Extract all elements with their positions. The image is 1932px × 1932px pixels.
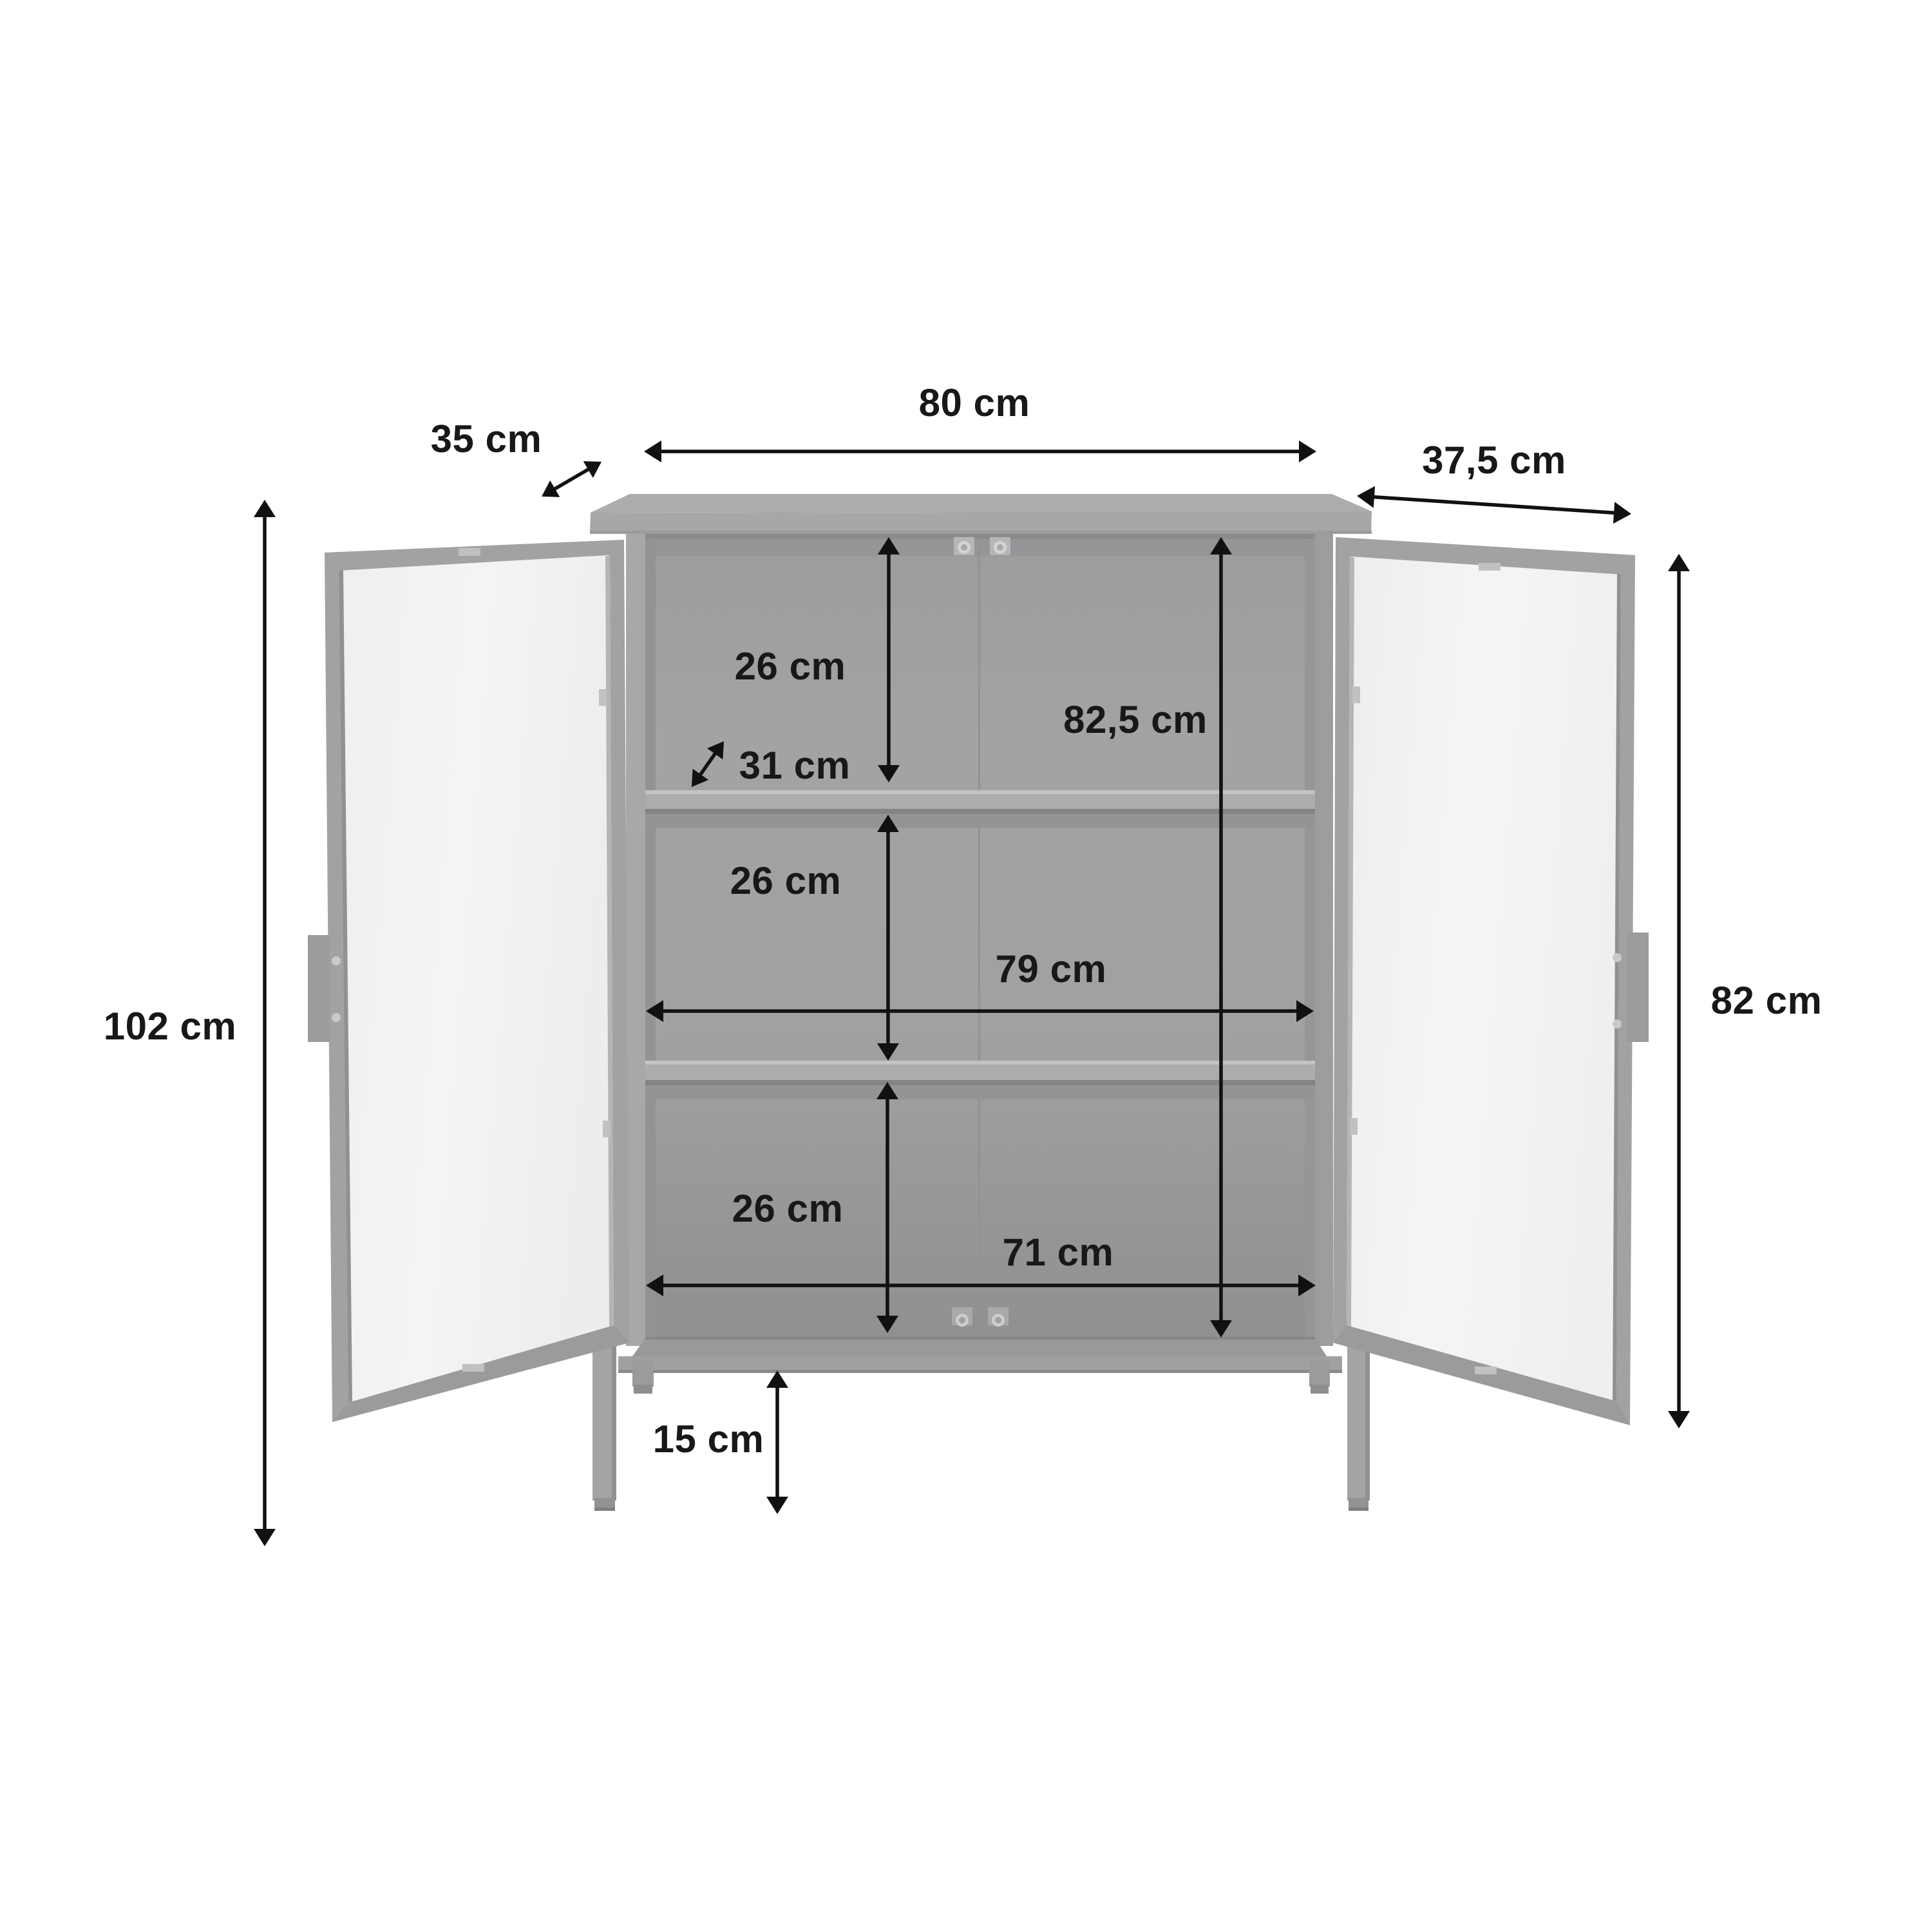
svg-text:37,5 cm: 37,5 cm: [1422, 439, 1566, 482]
svg-text:102 cm: 102 cm: [104, 1005, 237, 1048]
svg-text:79 cm: 79 cm: [996, 947, 1107, 990]
svg-text:82,5 cm: 82,5 cm: [1063, 698, 1207, 741]
svg-text:82 cm: 82 cm: [1711, 979, 1823, 1022]
svg-text:71 cm: 71 cm: [1003, 1231, 1114, 1274]
svg-text:35 cm: 35 cm: [431, 417, 542, 460]
svg-text:80 cm: 80 cm: [919, 381, 1030, 424]
svg-text:31 cm: 31 cm: [739, 744, 851, 787]
svg-text:26 cm: 26 cm: [735, 645, 846, 688]
svg-text:26 cm: 26 cm: [732, 1187, 844, 1230]
svg-text:26 cm: 26 cm: [730, 859, 842, 902]
svg-text:15 cm: 15 cm: [653, 1417, 764, 1461]
